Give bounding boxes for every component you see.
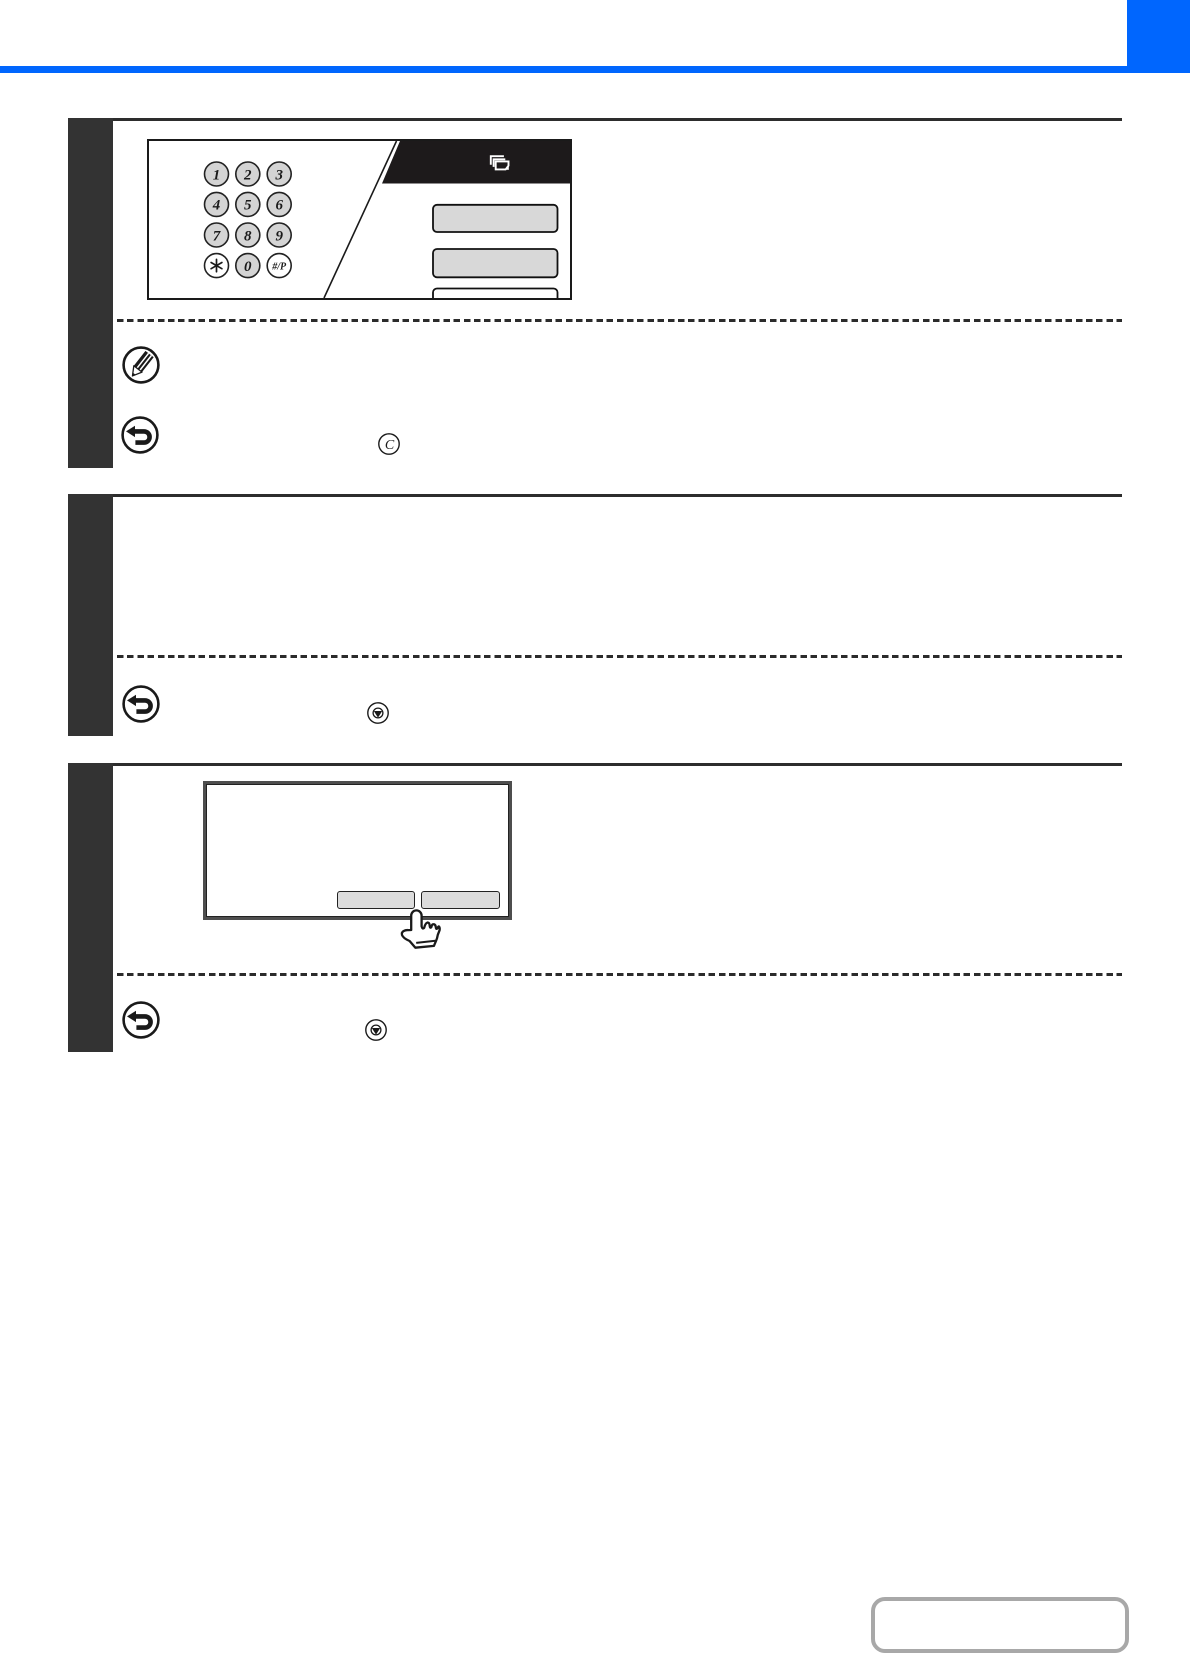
svg-text:6: 6	[275, 198, 283, 214]
svg-text:5: 5	[244, 198, 252, 214]
svg-text:0: 0	[244, 259, 252, 275]
svg-text:3: 3	[274, 167, 283, 183]
svg-text:7: 7	[212, 228, 220, 244]
svg-text:8: 8	[244, 228, 252, 244]
svg-text:4: 4	[211, 198, 220, 214]
svg-text:1: 1	[212, 167, 220, 183]
svg-text:2: 2	[243, 167, 252, 183]
svg-text:C: C	[385, 438, 395, 453]
svg-text:#/P: #/P	[271, 261, 287, 272]
svg-text:9: 9	[275, 228, 283, 244]
